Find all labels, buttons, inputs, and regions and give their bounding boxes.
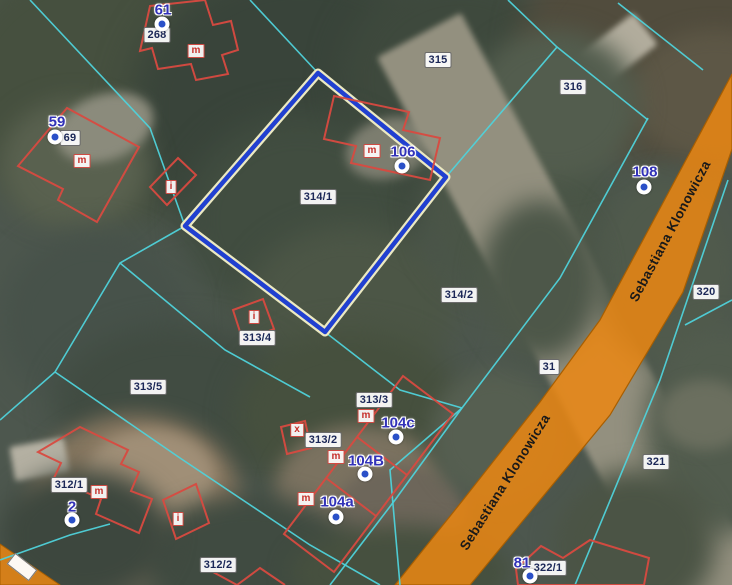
parcel-number-label[interactable]: 313/3 [356,392,393,408]
street-name-label: Sebastiana Klonowicza [457,411,553,553]
address-point-marker[interactable] [48,130,63,145]
parcel-number-label[interactable]: 313/4 [239,330,276,346]
building-type-label: m [298,492,315,506]
parcel-number-label[interactable]: 314/2 [441,287,478,303]
building-type-label: m [358,409,375,423]
address-point-marker[interactable] [358,467,373,482]
address-number-label[interactable]: 59 [49,114,66,131]
building-type-label: i [249,310,260,324]
parcel-number-label[interactable]: 321 [643,454,670,470]
parcel-number-label[interactable]: 315 [425,52,452,68]
address-point-marker[interactable] [65,513,80,528]
map-labels: 26869315316314/1314/2313/4313/5313/3313/… [0,0,732,585]
parcel-number-label[interactable]: 69 [60,130,81,146]
building-type-label: m [74,154,91,168]
address-point-marker[interactable] [389,430,404,445]
parcel-number-label[interactable]: 314/1 [300,189,337,205]
map-canvas[interactable]: 26869315316314/1314/2313/4313/5313/3313/… [0,0,732,585]
address-point-marker[interactable] [637,180,652,195]
parcel-number-label[interactable]: 313/2 [305,432,342,448]
parcel-number-label[interactable]: 316 [560,79,587,95]
building-type-label: i [166,180,177,194]
address-point-marker[interactable] [329,510,344,525]
building-type-label: m [91,485,108,499]
address-point-marker[interactable] [395,159,410,174]
parcel-number-label[interactable]: 320 [693,284,720,300]
parcel-number-label[interactable]: 312/2 [200,557,237,573]
building-type-label: m [328,450,345,464]
parcel-number-label[interactable]: 31 [539,359,560,375]
building-type-label: x [290,423,304,437]
address-number-label[interactable]: 108 [632,164,657,181]
address-number-label[interactable]: 104a [320,494,353,511]
address-point-marker[interactable] [155,17,170,32]
building-type-label: m [188,44,205,58]
parcel-number-label[interactable]: 312/1 [51,477,88,493]
building-type-label: i [173,512,184,526]
building-type-label: m [364,144,381,158]
parcel-number-label[interactable]: 313/5 [130,379,167,395]
address-point-marker[interactable] [523,569,538,584]
